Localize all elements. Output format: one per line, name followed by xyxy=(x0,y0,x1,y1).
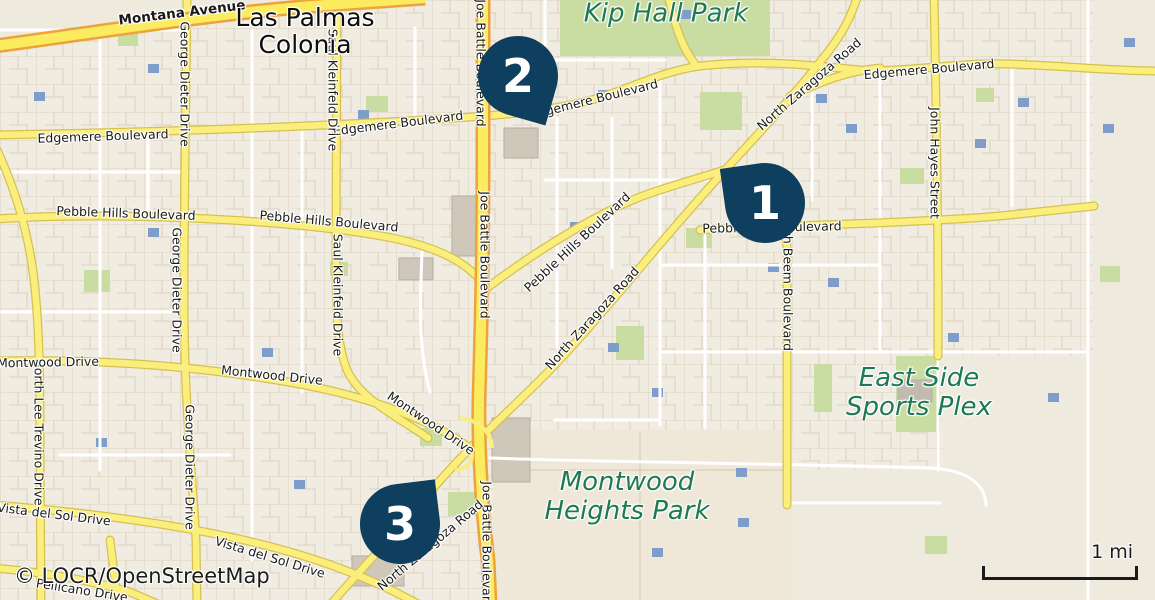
map-attribution: © LOCR/OpenStreetMap xyxy=(14,564,270,588)
map-marker-1-number: 1 xyxy=(749,176,781,230)
map-canvas[interactable]: Montana Avenue Edgemere Boulevard Edgeme… xyxy=(0,0,1155,600)
map-marker-3-number: 3 xyxy=(384,497,416,551)
scale-bar-label: 1 mi xyxy=(1091,541,1133,563)
scale-bar xyxy=(982,566,1138,580)
map-marker-2-number: 2 xyxy=(502,49,534,103)
map-artwork xyxy=(0,0,1155,600)
